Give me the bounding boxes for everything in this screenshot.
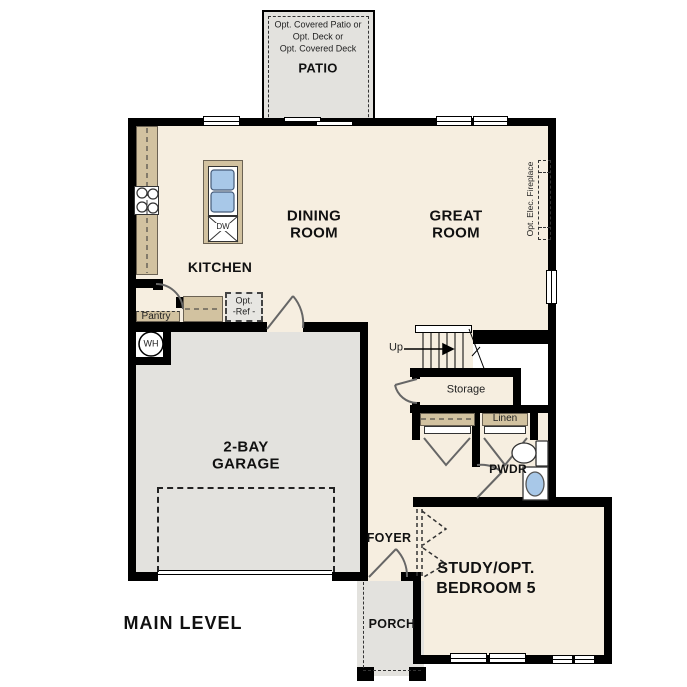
patio-note-2: Opt. Deck or xyxy=(293,33,344,42)
pwdr-label: PWDR xyxy=(489,463,527,475)
wall-study-right xyxy=(604,497,612,664)
sliding-door-panel-2 xyxy=(316,121,353,126)
wall-pantry-post-a xyxy=(153,279,163,290)
patio-note-1: Opt. Covered Patio or xyxy=(274,21,361,30)
fireplace-dashed xyxy=(538,160,551,240)
window-study-2 xyxy=(489,653,526,663)
stairwell-void xyxy=(473,344,548,368)
pantry-label: Pantry xyxy=(142,312,171,322)
garage-label-2: GARAGE xyxy=(212,457,280,472)
kitchen-counter-segment xyxy=(183,296,223,322)
wall-study-top xyxy=(413,497,612,507)
window-study-4 xyxy=(574,655,595,664)
wall-closet-right xyxy=(530,405,538,440)
wall-storage-left-stub-top xyxy=(412,368,420,379)
garage-label-1: 2-BAY xyxy=(223,440,268,455)
up-label: Up xyxy=(389,343,403,354)
closet-rod-left xyxy=(424,426,471,434)
wall-storage-top xyxy=(410,368,521,377)
dishwasher-label: DW xyxy=(215,223,230,231)
window-great-2 xyxy=(473,116,508,126)
foyer-label: FOYER xyxy=(367,532,412,545)
kitchen-label: KITCHEN xyxy=(188,260,252,274)
study-label-2: BEDROOM 5 xyxy=(436,581,536,597)
closet-rod-linen xyxy=(484,426,526,434)
garage-setback-dashed xyxy=(157,487,335,572)
window-study-3 xyxy=(552,655,573,664)
wall-kitchen-bottom-left xyxy=(128,322,267,332)
window-greatroom-right xyxy=(546,270,557,304)
great-room-label-1: GREAT xyxy=(430,209,483,224)
island-sink-box xyxy=(208,166,238,216)
window-study-1 xyxy=(450,653,487,663)
patio-label: PATIO xyxy=(298,62,337,75)
wall-kitchen-bottom-right xyxy=(303,322,368,332)
side-void xyxy=(521,368,548,405)
dining-room-label-2: ROOM xyxy=(290,226,338,241)
window-great-1 xyxy=(436,116,472,126)
dining-room-label-1: DINING xyxy=(287,209,341,224)
porch-dashed-left xyxy=(363,582,364,668)
wall-wh-bottom xyxy=(128,357,171,365)
closet-shelf-left xyxy=(420,413,475,426)
cooktop xyxy=(134,186,159,215)
opt-ref-label-2: -Ref - xyxy=(233,308,256,317)
storage-label: Storage xyxy=(447,385,486,396)
wall-greatroom-bottom xyxy=(473,330,556,344)
wall-storage-right xyxy=(513,377,521,407)
floor-plan: Opt. Covered Patio or Opt. Deck or Opt. … xyxy=(0,0,687,687)
porch-dashed-bottom xyxy=(363,670,421,671)
wall-garage-front-left xyxy=(128,572,158,581)
linen-label: Linen xyxy=(493,414,517,424)
stair-railing xyxy=(415,325,472,333)
patio-note-3: Opt. Covered Deck xyxy=(280,45,357,54)
opt-ref-label-1: Opt. xyxy=(235,297,252,306)
wall-front-foyer xyxy=(401,572,421,581)
fireplace-label: Opt. Elec. Fireplace xyxy=(526,162,535,237)
great-room-label-2: ROOM xyxy=(432,226,480,241)
page-title: MAIN LEVEL xyxy=(123,614,242,632)
window-dining xyxy=(203,116,240,126)
study-label-1: STUDY/OPT. xyxy=(437,561,534,577)
porch-label: PORCH xyxy=(369,618,416,631)
wall-garage-front-right xyxy=(332,572,368,581)
water-heater-label: WH xyxy=(144,340,159,349)
